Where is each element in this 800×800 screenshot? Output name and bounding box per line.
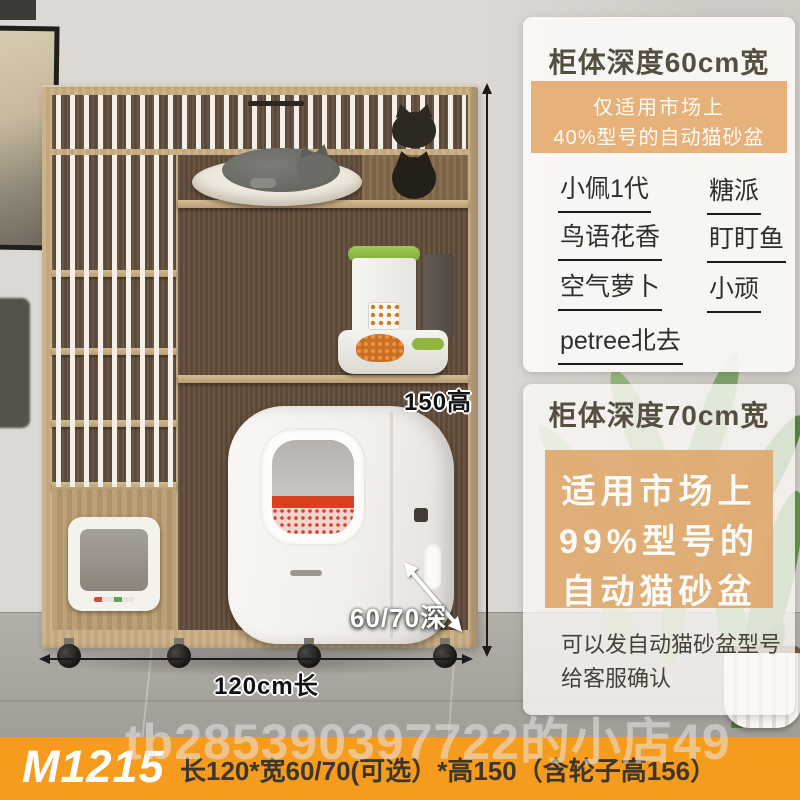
cabinet-handle [248,101,304,106]
height-arrow-icon [486,92,488,648]
length-dimension-label: 120cm长 [214,666,319,701]
feeder-bowl [338,330,448,374]
cat-hole-panel [362,155,468,203]
note-line: 给客服确认 [561,662,781,696]
info-card-70cm: 柜体深度70cm宽 适用市场上 99%型号的 自动猫砂盆 可以发自动猫砂盆型号 … [523,384,795,715]
card-title: 柜体深度60cm宽 [523,41,795,81]
cat-silhouette-icon [392,112,436,148]
litter-box-window [272,440,354,534]
highlight-note-box: 适用市场上 99%型号的 自动猫砂盆 [545,450,773,608]
compatible-model: 鸟语花香 [558,217,662,261]
compatible-model: 空气萝卜 [558,267,662,311]
ceiling-corner [0,0,36,20]
spec-text: 长120*宽60/70(可选）*高150（含轮子高156） [180,751,716,788]
caster-wheel [296,638,322,668]
product-listing-image: 150高 120cm长 60/70深 柜体深度60cm宽 仅适用市场上 40%型… [0,0,800,800]
water-container [424,254,454,338]
customer-service-note: 可以发自动猫砂盆型号 给客服确认 [561,628,781,696]
height-dimension-label: 150高 [404,382,472,417]
note-line: 可以发自动猫砂盆型号 [561,628,781,662]
litter-box-button [414,508,428,522]
green-bowl [412,338,444,350]
card-title: 柜体深度70cm宽 [523,394,795,434]
highlight-note-box: 仅适用市场上 40%型号的自动猫砂盆 [531,81,787,153]
litter-box-opening [262,430,364,544]
note-line: 99%型号的 [545,514,773,563]
caster-wheel [56,638,82,668]
caster-wheel [166,638,192,668]
note-line: 适用市场上 [545,464,773,513]
cat-paw [250,178,276,188]
note-line: 自动猫砂盆 [545,564,773,613]
model-code: M1215 [22,741,165,793]
cabinet-left-slats [56,155,174,487]
kibble-pile [356,334,404,362]
compatible-model: 小顽 [707,269,761,313]
litter-box-handle [290,570,322,576]
cabinet-door-panel [52,489,176,630]
cat-head-cutout-icon [392,157,436,199]
background-furniture [0,298,30,428]
cat-door-indicator [94,597,134,602]
model-spec-bar: M1215 长120*宽60/70(可选）*高150（含轮子高156） [0,737,800,800]
feeder-kibble-window [368,302,400,330]
automatic-feeder [352,258,416,336]
cat-door [68,517,160,611]
note-line: 仅适用市场上 [531,91,787,120]
length-arrow-icon [48,658,464,660]
depth-dimension-label: 60/70深 [350,598,447,635]
note-line: 40%型号的自动猫砂盆 [531,121,787,150]
compatible-model: 盯盯鱼 [707,219,786,263]
litter-box-red-band [272,496,354,508]
cat-door-flap [80,529,148,591]
compatible-model: 小佩1代 [558,169,651,213]
info-card-60cm: 柜体深度60cm宽 仅适用市场上 40%型号的自动猫砂盆 小佩1代 鸟语花香 空… [523,17,795,372]
compatible-model: petree北去 [558,321,683,365]
litter-box-mat-pattern [272,508,354,534]
compatible-model: 糖派 [707,171,761,215]
caster-wheel [432,638,458,668]
